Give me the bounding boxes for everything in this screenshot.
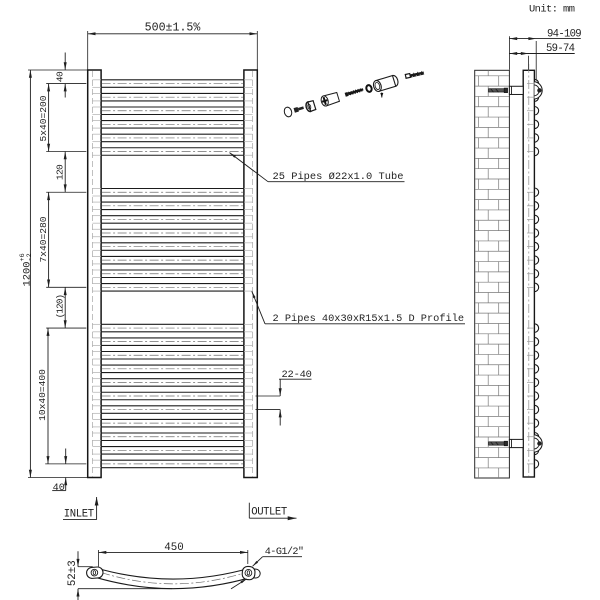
svg-text:(120): (120) <box>54 295 65 319</box>
svg-text:4-G1/2″: 4-G1/2″ <box>265 546 304 558</box>
svg-text:10x40=400: 10x40=400 <box>37 369 48 421</box>
svg-text:59-74: 59-74 <box>546 43 575 55</box>
svg-text:25 Pipes Ø22x1.0 Tube: 25 Pipes Ø22x1.0 Tube <box>273 171 404 183</box>
svg-text:450: 450 <box>164 542 183 554</box>
svg-text:120: 120 <box>54 164 65 180</box>
svg-text:OUTLET: OUTLET <box>251 507 287 519</box>
svg-text:40: 40 <box>54 71 65 82</box>
svg-text:-2: -2 <box>26 253 34 261</box>
svg-text:1200: 1200 <box>22 262 34 287</box>
svg-text:2 Pipes 40x30xR15x1.5 D Profil: 2 Pipes 40x30xR15x1.5 D Profile <box>273 313 465 325</box>
svg-text:Unit: mm: Unit: mm <box>529 4 575 16</box>
svg-text:500±1.5%: 500±1.5% <box>145 21 201 34</box>
svg-text:94-109: 94-109 <box>547 29 581 41</box>
svg-text:52±3: 52±3 <box>67 560 79 586</box>
svg-text:5x40=200: 5x40=200 <box>38 95 49 141</box>
svg-text:40: 40 <box>53 483 65 494</box>
svg-text:INLET: INLET <box>64 508 94 520</box>
svg-text:7x40=280: 7x40=280 <box>38 216 49 262</box>
